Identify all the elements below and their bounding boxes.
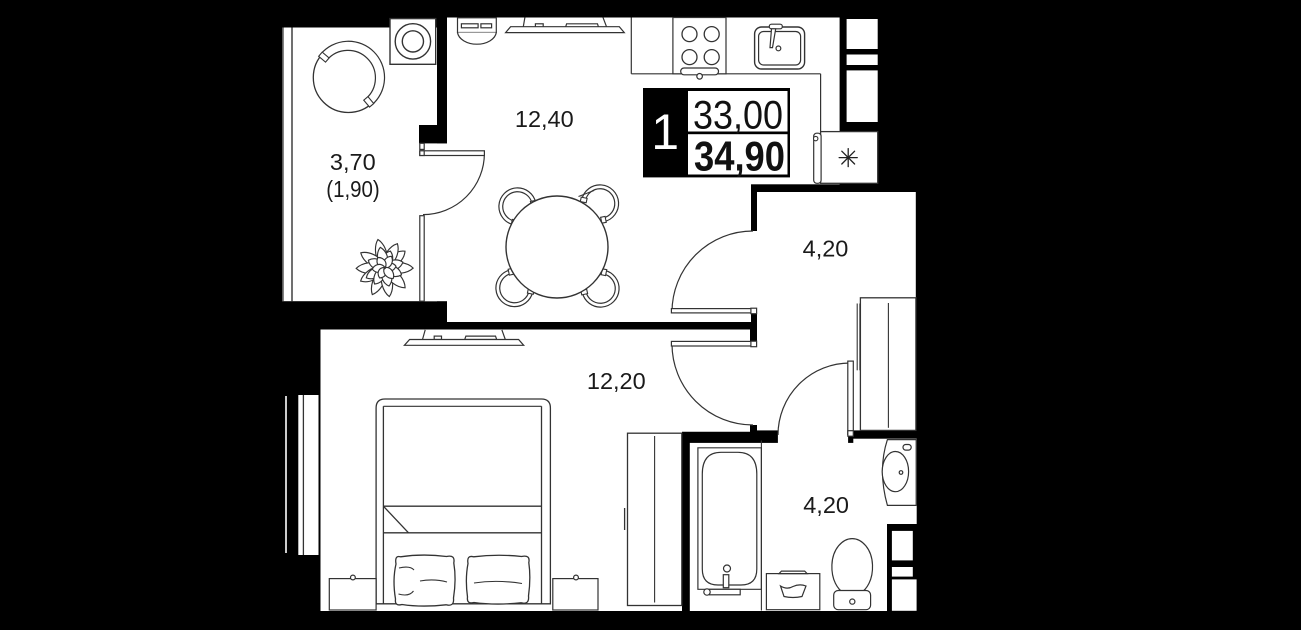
- svg-text:12,40: 12,40: [515, 106, 574, 132]
- svg-text:(1,90): (1,90): [326, 176, 380, 202]
- svg-text:4,20: 4,20: [803, 235, 849, 261]
- svg-text:3,70: 3,70: [330, 149, 376, 175]
- svg-text:12,20: 12,20: [587, 368, 646, 394]
- svg-text:1: 1: [651, 104, 679, 160]
- svg-text:34,90: 34,90: [694, 132, 785, 179]
- svg-text:33,00: 33,00: [693, 93, 783, 137]
- svg-text:4,20: 4,20: [803, 492, 849, 518]
